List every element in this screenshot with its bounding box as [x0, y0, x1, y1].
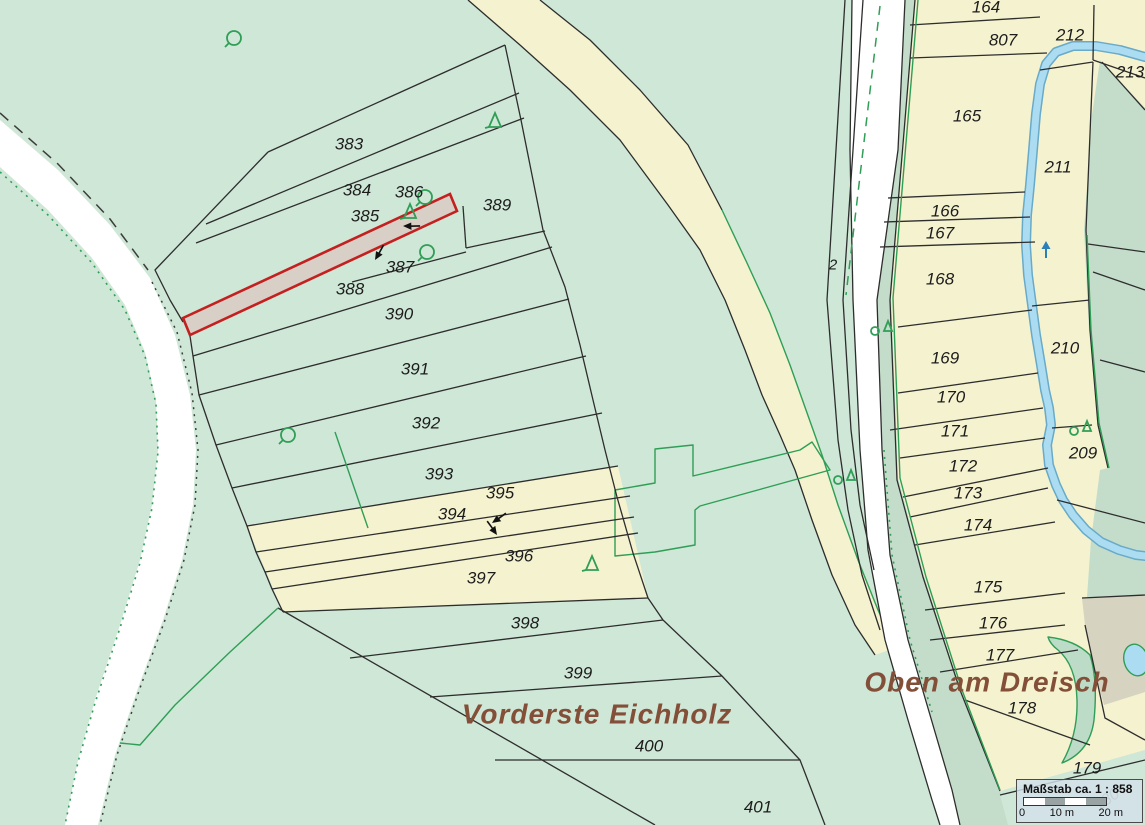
place-name: Oben am Dreisch	[864, 667, 1109, 698]
parcel-label-171: 171	[941, 422, 969, 441]
parcel-label-177: 177	[986, 646, 1015, 665]
scale-tick-0: 0	[1019, 807, 1025, 819]
parcel-label-396: 396	[505, 547, 534, 566]
parcel-label-395: 395	[486, 484, 515, 503]
parcel-label-174: 174	[964, 516, 992, 535]
parcel-label-390: 390	[385, 305, 414, 324]
parcel-label-175: 175	[974, 578, 1003, 597]
parcel-label-165: 165	[953, 107, 982, 126]
parcel-label-172: 172	[949, 457, 978, 476]
parcel-label-164: 164	[972, 0, 1000, 17]
parcel-label-401: 401	[744, 798, 772, 817]
parcel-label-179: 179	[1073, 759, 1102, 778]
parcel-label-389: 389	[483, 196, 512, 215]
parcel-label-398: 398	[511, 614, 540, 633]
scale-tick-20: 20 m	[1099, 807, 1123, 819]
parcel-label-391: 391	[401, 360, 429, 379]
parcel-label-387: 387	[386, 258, 415, 277]
parcel-label-212: 212	[1055, 26, 1085, 45]
parcel-label-211: 211	[1043, 158, 1071, 177]
parcel-label-388: 388	[336, 280, 365, 299]
parcel-label-210: 210	[1050, 339, 1080, 358]
scale-bar	[1023, 797, 1107, 806]
parcel-label-167: 167	[926, 224, 955, 243]
parcel-label-386: 386	[395, 183, 424, 202]
parcel-label-213: 213	[1115, 63, 1145, 82]
parcel-label-385: 385	[351, 207, 380, 226]
map-viewport[interactable]: 3833843853863873883893903913923933943953…	[0, 0, 1145, 825]
parcel-label-384: 384	[343, 181, 371, 200]
map-canvas[interactable]: 3833843853863873883893903913923933943953…	[0, 0, 1145, 825]
parcel-label-168: 168	[926, 270, 955, 289]
parcel-label-2: 2	[828, 257, 838, 274]
parcel-label-394: 394	[438, 505, 466, 524]
parcel-label-209: 209	[1068, 444, 1098, 463]
place-name: Vorderste Eichholz	[462, 699, 733, 730]
parcel-label-166: 166	[931, 202, 960, 221]
parcel-label-170: 170	[937, 388, 966, 407]
parcel-label-400: 400	[635, 737, 664, 756]
parcel-label-399: 399	[564, 664, 593, 683]
scale-box: Maßstab ca. 1 : 858 0 10 m 20 m	[1016, 779, 1143, 823]
parcel-label-383: 383	[335, 135, 364, 154]
parcel-label-807: 807	[989, 31, 1018, 50]
parcel-label-176: 176	[979, 614, 1008, 633]
parcel-label-169: 169	[931, 349, 960, 368]
parcel-label-397: 397	[467, 569, 496, 588]
parcel-label-393: 393	[425, 465, 454, 484]
scale-tick-10: 10 m	[1050, 807, 1074, 819]
parcel-label-173: 173	[954, 484, 983, 503]
parcel-label-392: 392	[412, 414, 441, 433]
parcel-label-178: 178	[1008, 699, 1037, 718]
scale-title: Maßstab ca. 1 : 858	[1023, 782, 1142, 796]
